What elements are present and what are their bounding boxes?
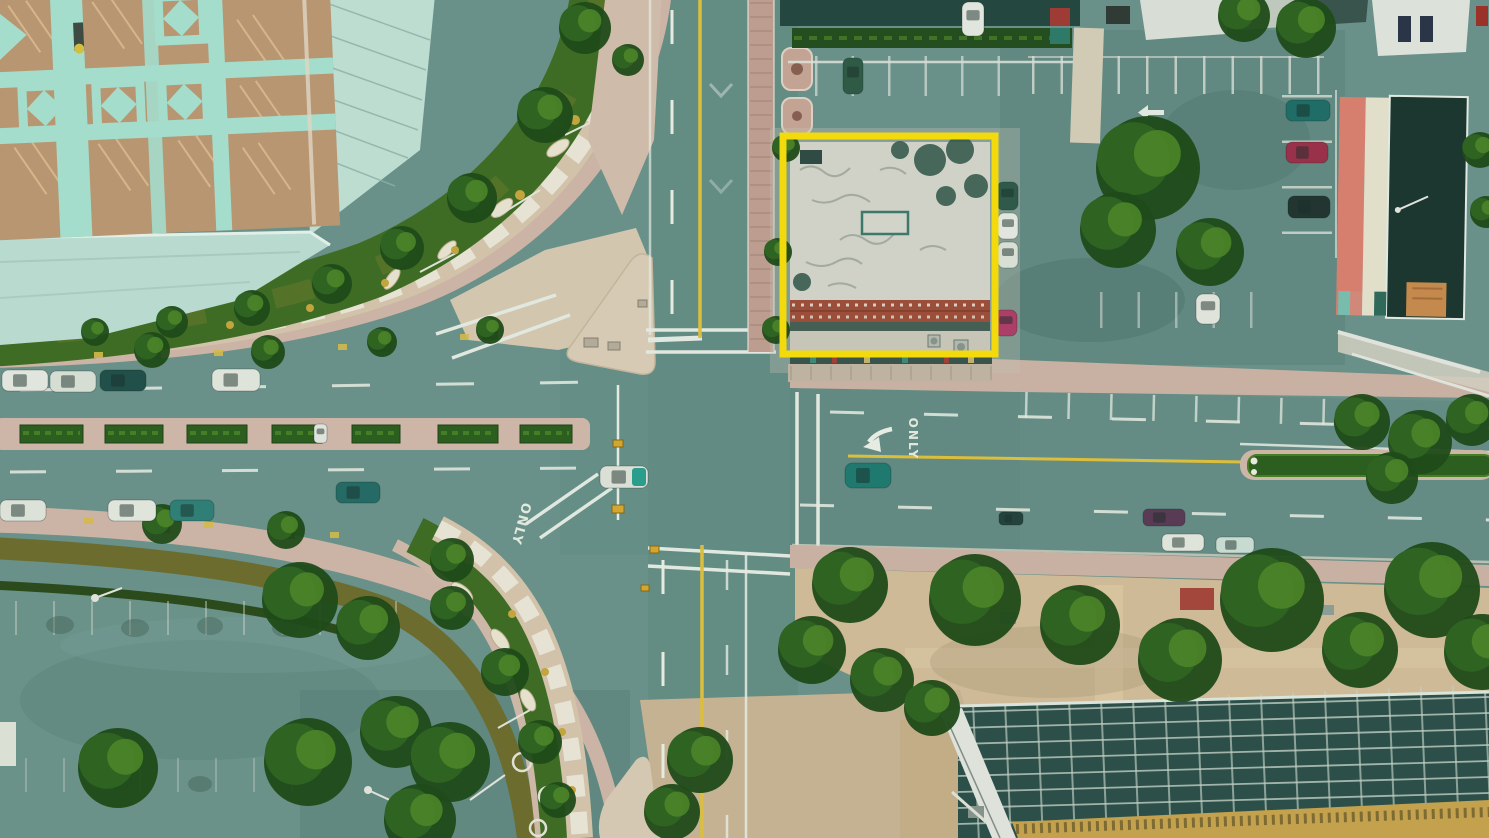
aerial-photo: ONLY ONLY	[0, 0, 1489, 838]
road-marking-only-text-east: ONLY	[906, 418, 920, 461]
photo-tint	[0, 0, 1489, 838]
aerial-photo-frame: ONLY ONLY	[0, 0, 1489, 838]
